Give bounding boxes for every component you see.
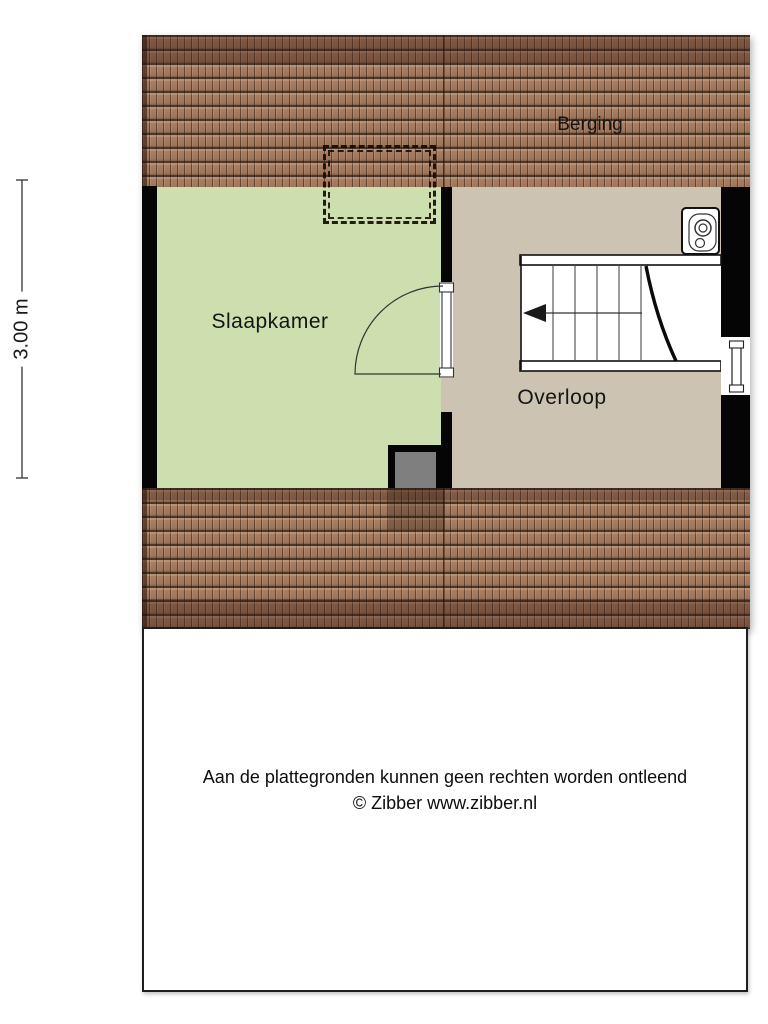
roof-section-divider	[443, 35, 445, 187]
roof-bottom-section	[142, 488, 750, 629]
overloop-label: Overloop	[517, 386, 606, 410]
rooms-band	[142, 187, 750, 488]
roof-left-edge-bottom	[142, 488, 147, 629]
page-root: Berging Slaapkamer Overloop 3.00 m 2.80 …	[0, 0, 768, 1024]
roof-left-edge	[142, 35, 147, 187]
chimney-shadow	[388, 488, 445, 530]
roof-section-divider-bottom	[443, 488, 445, 629]
copyright-text: © Zibber www.zibber.nl	[142, 790, 748, 816]
wall-right-upper	[721, 187, 750, 338]
roof-top-section	[142, 35, 750, 187]
disclaimer-text: Aan de plattegronden kunnen geen rechten…	[142, 764, 748, 790]
room-slaapkamer	[157, 187, 441, 488]
slaapkamer-label: Slaapkamer	[211, 310, 328, 334]
berging-label: Berging	[557, 114, 623, 136]
wall-right-lower	[721, 395, 750, 488]
chimney-duct-inner	[395, 452, 436, 488]
roof-ridge-band	[142, 35, 750, 63]
chimney-duct	[388, 445, 452, 488]
dimension-vertical-label: 3.00 m	[11, 291, 34, 366]
disclaimer-block: Aan de plattegronden kunnen geen rechten…	[142, 764, 748, 816]
wall-left	[142, 186, 157, 489]
wall-interior-upper	[441, 187, 452, 318]
roof-eave-edge	[142, 488, 750, 500]
roof-eave-band	[142, 599, 750, 629]
dormer-outline-dashed-icon	[323, 145, 436, 224]
dormer-outline-inner	[328, 150, 431, 219]
